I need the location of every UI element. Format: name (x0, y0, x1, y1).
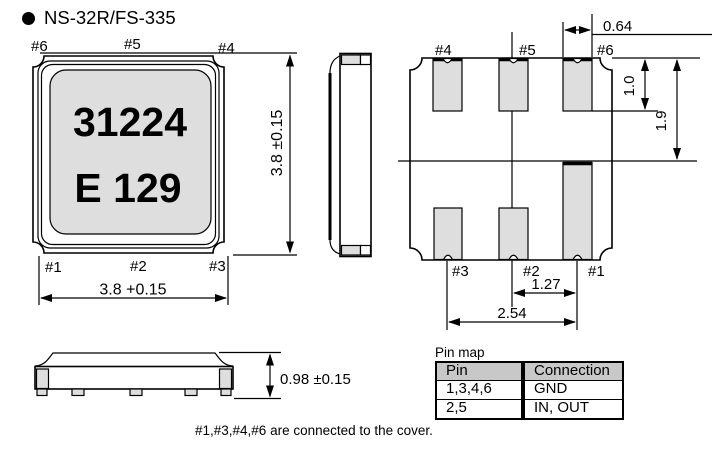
bottom-profile-view: 0.98 ±0.15 (35, 353, 351, 399)
side-view-top-pad (342, 55, 361, 65)
pin-map-cell-pins-gnd: 1,3,4,6 (436, 380, 523, 399)
pad-layout-pin1-label: #1 (588, 263, 605, 280)
profile-right-pad (220, 369, 232, 389)
pad-layout-pin6-label: #6 (597, 42, 614, 59)
top-view-pin2-label: #2 (130, 258, 147, 275)
pad-6 (563, 59, 592, 112)
side-view-bottom-pad (342, 246, 361, 256)
table-row: 1,3,4,6 GND (436, 380, 623, 399)
table-row: 2,5 IN, OUT (436, 399, 623, 419)
top-view-pin1-label: #1 (45, 259, 62, 276)
pad-3 (434, 208, 462, 260)
top-view-pin3-label: #3 (209, 258, 226, 275)
pad-width-dim-text: 0.64 (603, 18, 632, 35)
drawing-header: NS-32R/FS-335 (22, 7, 176, 29)
side-view (330, 54, 371, 257)
span-dim-text: 2.54 (497, 305, 526, 322)
width-dim-text: 3.8 +0.15 (99, 282, 166, 299)
pin-map-cell-gnd: GND (523, 380, 623, 399)
pin-map-header-connection: Connection (523, 362, 623, 380)
pin-map-cell-pins-io: 2,5 (436, 399, 523, 419)
profile-body (35, 367, 233, 390)
top-view: 31224 E 129 #6 #5 #4 #1 #2 #3 (31, 36, 235, 276)
pin-map-label: Pin map (435, 345, 624, 360)
side-view-body (340, 54, 371, 257)
pad-layout-pin3-label: #3 (452, 263, 469, 280)
height-dim-text: 3.8 ±0.15 (269, 110, 286, 177)
cover-connection-note: #1,#3,#4,#6 are connected to the cover. (195, 423, 433, 438)
profile-height-dim-text: 0.98 ±0.15 (280, 371, 351, 388)
top-view-pin5-label: #5 (124, 36, 141, 53)
pin-map-cell-io: IN, OUT (523, 399, 623, 419)
page-title: NS-32R/FS-335 (44, 7, 176, 29)
edge-to-center-dim-text: 1.9 (653, 111, 670, 132)
pad-4 (433, 59, 462, 112)
marking-line-2: E 129 (74, 165, 181, 211)
datasheet-drawing: 31224 E 129 #6 #5 #4 #1 #2 #3 3.8 ±0.15 … (0, 0, 723, 458)
pad-2 (499, 208, 528, 260)
profile-left-pad (37, 369, 49, 389)
top-view-pin4-label: #4 (218, 40, 235, 57)
pad-layout-view: #4 #5 #6 #3 #2 #1 (398, 32, 697, 307)
pitch-dim-text: 1.27 (531, 276, 560, 293)
pin-map-header-pin: Pin (436, 362, 523, 380)
pad-length-dim-text: 1.0 (621, 76, 638, 97)
pin-map: Pin map Pin Connection 1,3,4,6 GND 2,5 I… (435, 345, 624, 420)
pad-layout-pin4-label: #4 (435, 42, 452, 59)
pad-1 (563, 163, 592, 260)
pad-layout-pin5-label: #5 (519, 42, 536, 59)
bullet-icon (22, 12, 35, 25)
pad-5 (499, 59, 528, 112)
marking-line-1: 31224 (73, 99, 187, 145)
pin-map-table: Pin Connection 1,3,4,6 GND 2,5 IN, OUT (435, 361, 624, 420)
